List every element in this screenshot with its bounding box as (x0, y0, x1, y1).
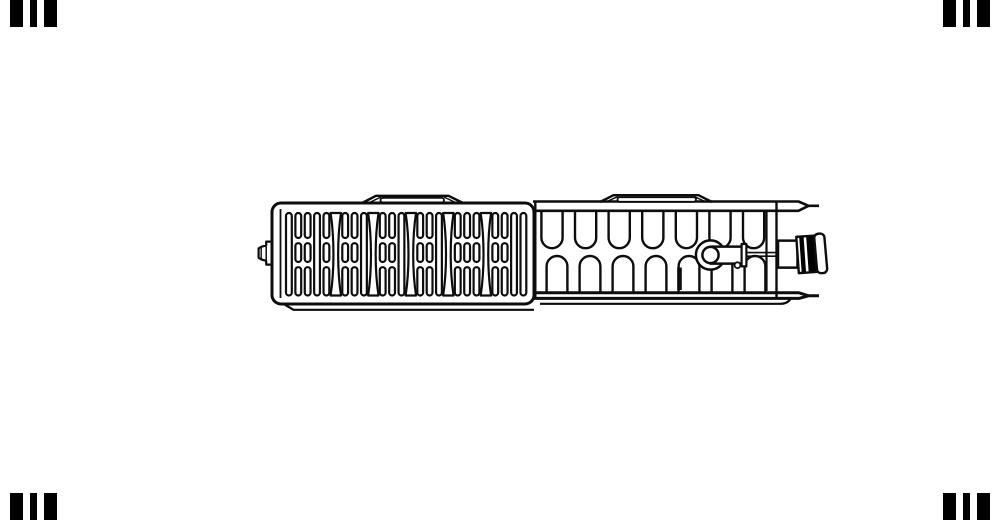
watermark-bar-top-left (10, 0, 23, 27)
grille-slat (464, 267, 470, 295)
grille-slat (295, 267, 301, 295)
watermark-bar-top-right (977, 0, 990, 27)
grille-slat (361, 213, 367, 296)
fin-lobe-bottom (613, 256, 634, 293)
fin-lobe-top (541, 212, 562, 249)
grille-slat (342, 243, 348, 262)
grille-slat (389, 243, 395, 262)
grille-slat (427, 213, 433, 238)
valve-connector-shape (778, 241, 798, 268)
grille-slat (474, 267, 480, 295)
grille-slat (295, 213, 301, 238)
grille-slat (389, 267, 395, 295)
grille-slat (380, 243, 386, 262)
fin-lobe-bottom (646, 256, 667, 293)
grille-slat (417, 213, 423, 238)
grille-slat (314, 213, 320, 296)
fin-lobe-top (676, 212, 697, 249)
fin-lobe-bottom (745, 256, 766, 293)
grille-slat (464, 213, 470, 238)
grille-slat (502, 267, 508, 295)
grille-slat (455, 267, 461, 295)
mounting-lugs-shape (618, 197, 697, 202)
grille-slat (342, 267, 348, 295)
thermostatic-valve-body (696, 240, 776, 269)
grille-slat (464, 243, 470, 262)
watermark-bar-bottom-left (30, 493, 37, 520)
grille-slat (474, 213, 480, 238)
grille-slat (492, 213, 498, 238)
product-image-canvas (0, 0, 1000, 520)
grille-slat (305, 213, 311, 238)
valve-connector-shape (814, 233, 828, 273)
grille-slat (352, 243, 358, 262)
grille-slat (455, 213, 461, 238)
watermark-bar-bottom-right (977, 493, 990, 520)
grille-slat (427, 243, 433, 262)
grille-slat (342, 213, 348, 238)
grille-slat (389, 213, 395, 238)
grille-slat (492, 243, 498, 262)
grille-slat (305, 267, 311, 295)
convector-outline-shape (536, 206, 809, 211)
grille-slat (417, 267, 423, 295)
watermark-bar-bottom-right (963, 493, 970, 520)
radiator-technical-drawing (0, 0, 1000, 520)
grille-slat (436, 213, 442, 296)
valve-connection-fitting (778, 233, 828, 273)
grille-slat (352, 267, 358, 295)
grille-slat (492, 267, 498, 295)
watermark-bar-top-right (943, 0, 956, 27)
fin-lobe-top (743, 212, 764, 249)
grille-slat (380, 267, 386, 295)
watermark-bar-top-right (963, 0, 970, 27)
grille-slat (417, 243, 423, 262)
valve-assembly-shape (735, 262, 741, 268)
grille-slat (474, 243, 480, 262)
grille-slat (324, 213, 330, 238)
grille-slat (455, 243, 461, 262)
valve-assembly-shape (742, 244, 747, 266)
grille-slat (324, 267, 330, 295)
watermark-bar-bottom-right (943, 493, 956, 520)
grille-slat (352, 213, 358, 238)
grille-slat (399, 213, 405, 296)
grille-slat (380, 213, 386, 238)
valve-assembly-shape (702, 247, 718, 263)
mounting-lugs-shape (381, 198, 445, 203)
grille-slat (295, 243, 301, 262)
grille-slat (502, 213, 508, 238)
fin-lobe-bottom (580, 256, 601, 293)
grille-slat (286, 213, 292, 296)
grille-slat (511, 213, 517, 296)
convector-outline-shape (536, 293, 809, 296)
fin-lobe-top (642, 212, 663, 249)
fin-lobe-top (609, 212, 630, 249)
watermark-bar-top-left (44, 0, 57, 27)
watermark-bar-bottom-left (10, 493, 23, 520)
grille-slat (324, 243, 330, 262)
grille-slat (427, 267, 433, 295)
fin-lobe-bottom (547, 256, 568, 293)
grille-slat (502, 243, 508, 262)
air-vent-plug (259, 242, 272, 265)
watermark-bar-top-left (30, 0, 37, 27)
watermark-bar-bottom-left (44, 493, 57, 520)
grille-slat (521, 213, 527, 296)
grille-slat (305, 243, 311, 262)
fin-lobe-top (575, 212, 596, 249)
